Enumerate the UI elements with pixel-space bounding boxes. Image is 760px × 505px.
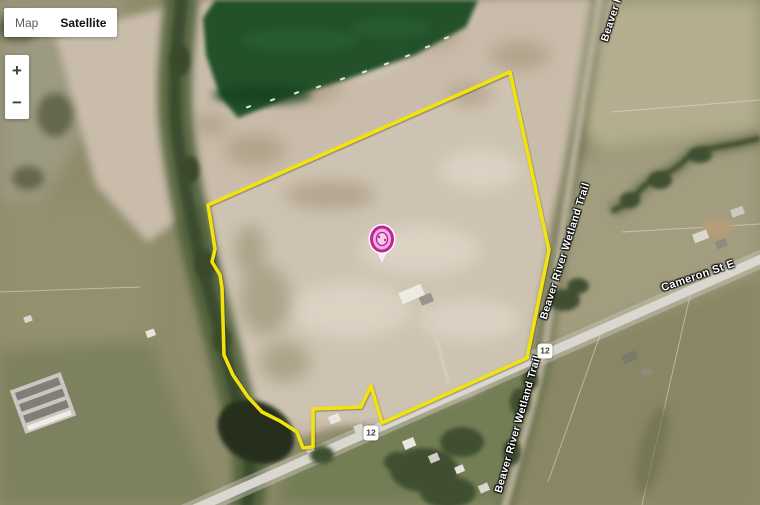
map-type-satellite-button[interactable]: Satellite xyxy=(49,8,117,37)
map-type-map-button[interactable]: Map xyxy=(4,8,49,37)
zoom-in-button[interactable]: + xyxy=(5,57,29,85)
satellite-imagery xyxy=(0,0,760,505)
zoom-out-button[interactable]: − xyxy=(5,89,29,117)
map-type-control: Map Satellite xyxy=(4,8,117,37)
zoom-control: + − xyxy=(5,55,29,119)
highway-12-shield: 12 xyxy=(538,344,553,359)
satellite-map-canvas[interactable]: Beaver River Wetland Trail Beaver River … xyxy=(0,0,760,505)
highway-12-shield: 12 xyxy=(364,426,379,441)
